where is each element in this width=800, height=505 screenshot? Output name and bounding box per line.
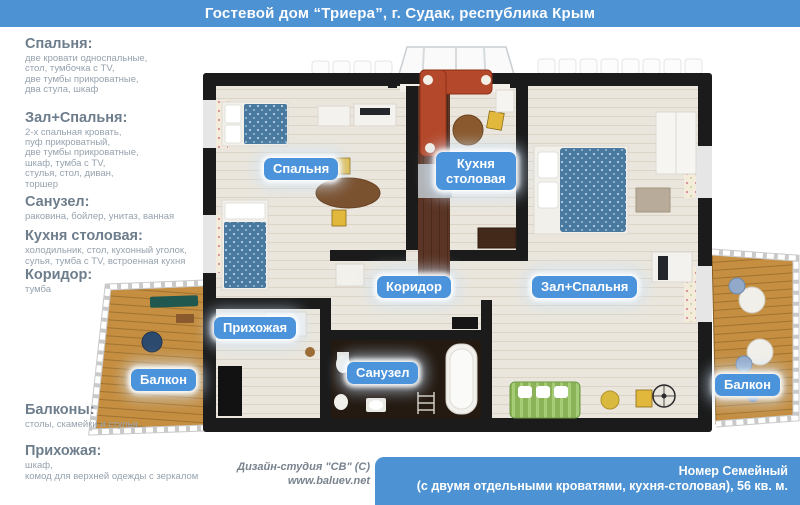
room-label-corridor: Коридор (377, 276, 451, 298)
legend-section-hall: Зал+Спальня: 2-х спальная кровать, пуф п… (25, 110, 215, 190)
legend-heading: Зал+Спальня: (25, 110, 215, 127)
bidet (334, 394, 348, 410)
legend-line: два стула, шкаф (25, 85, 215, 95)
legend-section-kitchen: Кухня столовая: холодильник, стол, кухон… (25, 228, 215, 267)
room-label-kitchen-line1: Кухня (446, 156, 506, 171)
chair (332, 210, 346, 226)
chair (336, 158, 350, 174)
room-label-kitchen-line2: столовая (446, 171, 506, 186)
legend-line: торшер (25, 180, 215, 190)
legend-heading: Прихожая: (25, 443, 235, 460)
design-studio-credit: Дизайн-студия "СВ" (С) www.baluev.net (150, 461, 370, 488)
wardrobe (336, 264, 364, 286)
room-label-balcony-right: Балкон (715, 374, 780, 396)
legend-heading: Санузел: (25, 194, 215, 211)
wheel (653, 385, 675, 407)
rug (316, 178, 380, 208)
balcony-right-graphic (712, 252, 796, 424)
page: Гостевой дом “Триера”, г. Судак, республ… (0, 0, 800, 505)
room-label-entry: Прихожая (214, 317, 296, 339)
caption-line1: Номер Семейный (375, 464, 788, 479)
bench (636, 188, 670, 212)
legend-section-corridor: Коридор: тумба (25, 267, 215, 295)
legend-heading: Балконы: (25, 402, 235, 419)
legend-section-bedroom: Спальня: две кровати односпальные, стол,… (25, 36, 215, 96)
legend-line: раковина, бойлер, унитаз, ванная (25, 212, 215, 222)
chair (636, 390, 652, 407)
legend-heading: Спальня: (25, 36, 215, 53)
room-label-kitchen: Кухня столовая (436, 152, 516, 190)
legend-heading: Кухня столовая: (25, 228, 215, 245)
legend-section-balconies: Балконы: столы, скамейки и стулья (25, 402, 235, 430)
caption-line2: (с двумя отдельными кроватями, кухня-сто… (375, 479, 788, 494)
website-url: www.baluev.net (150, 475, 370, 489)
page-title: Гостевой дом “Триера”, г. Судак, республ… (205, 5, 595, 22)
legend-line: тумба (25, 285, 215, 295)
room-label-bedroom: Спальня (264, 158, 338, 180)
dining-table (453, 115, 483, 145)
towel-ladder (418, 392, 434, 414)
legend-line: столы, скамейки и стулья (25, 420, 235, 430)
fridge (496, 90, 514, 112)
room-label-balcony-left: Балкон (131, 369, 196, 391)
stool (305, 347, 315, 357)
desk (318, 106, 350, 126)
room-label-hall: Зал+Спальня (532, 276, 637, 298)
room-type-caption: Номер Семейный (с двумя отдельными крова… (375, 457, 800, 505)
legend-heading: Коридор: (25, 267, 215, 284)
room-label-bathroom: Санузел (347, 362, 418, 384)
title-bar: Гостевой дом “Триера”, г. Судак, республ… (0, 0, 800, 27)
kitchen-cabinet (478, 228, 516, 248)
chair (487, 111, 505, 130)
cabinet (452, 317, 478, 329)
ottoman (601, 391, 619, 409)
legend-line: сулья, тумба с TV, встроенная кухня (25, 257, 215, 267)
round-table (142, 332, 162, 352)
legend-section-bathroom: Санузел: раковина, бойлер, унитаз, ванна… (25, 194, 215, 222)
chair (729, 278, 745, 294)
studio-name: Дизайн-студия "СВ" (С) (150, 461, 370, 475)
legend-top: Спальня: две кровати односпальные, стол,… (25, 36, 215, 310)
chair (736, 356, 752, 372)
